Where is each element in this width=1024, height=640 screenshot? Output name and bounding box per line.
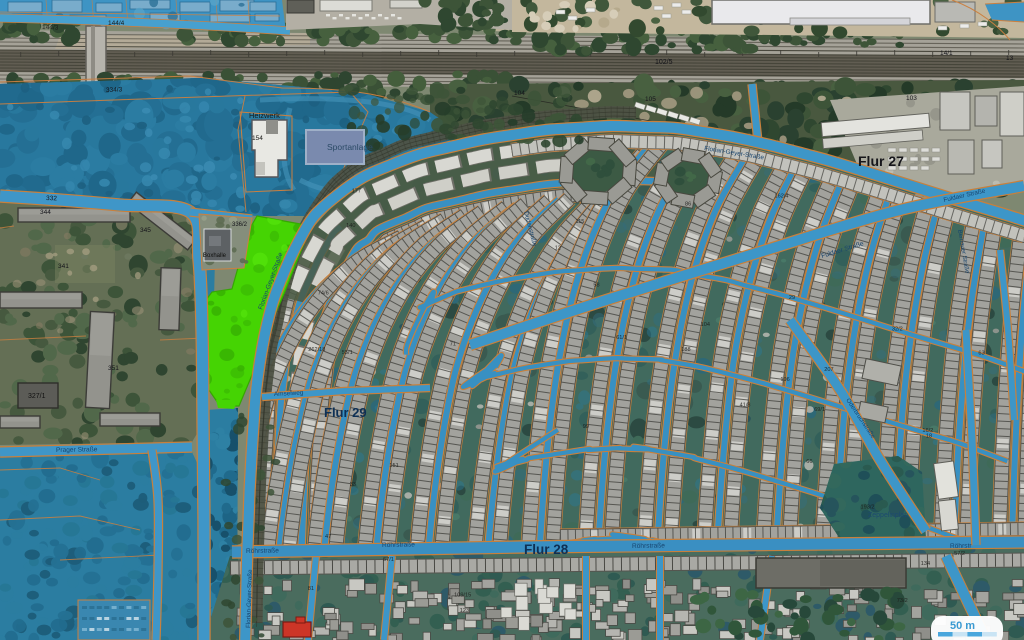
- svg-text:332: 332: [46, 195, 57, 202]
- svg-text:104: 104: [514, 90, 525, 97]
- svg-text:73/2: 73/2: [897, 598, 908, 604]
- svg-text:207: 207: [824, 367, 833, 373]
- svg-text:55/1: 55/1: [342, 350, 353, 356]
- svg-text:115: 115: [576, 219, 585, 225]
- svg-text:12: 12: [555, 245, 561, 251]
- svg-text:188: 188: [681, 347, 690, 353]
- svg-text:99: 99: [583, 424, 589, 430]
- svg-text:Flur 29: Flur 29: [324, 405, 367, 420]
- svg-text:14/1: 14/1: [940, 50, 953, 57]
- svg-text:71: 71: [450, 341, 456, 347]
- svg-text:104: 104: [701, 322, 710, 328]
- svg-text:Röhrstraße: Röhrstraße: [632, 542, 665, 550]
- svg-text:351: 351: [108, 365, 119, 372]
- svg-text:Zeppelinplatz: Zeppelinplatz: [868, 512, 910, 519]
- svg-text:Flur 28: Flur 28: [524, 542, 569, 557]
- svg-text:74/6: 74/6: [318, 291, 329, 297]
- svg-text:Röhrstraße: Röhrstraße: [246, 547, 279, 555]
- svg-text:50 m: 50 m: [950, 620, 975, 632]
- svg-text:63: 63: [978, 351, 984, 357]
- svg-text:103: 103: [906, 95, 917, 102]
- svg-text:81: 81: [308, 586, 314, 592]
- svg-text:Sportanlage: Sportanlage: [327, 142, 373, 152]
- svg-text:32/2: 32/2: [892, 327, 903, 333]
- svg-text:336/2: 336/2: [232, 222, 248, 228]
- svg-text:105: 105: [645, 96, 656, 103]
- svg-text:57/2: 57/2: [954, 551, 965, 557]
- svg-text:Heizwerk: Heizwerk: [249, 111, 280, 120]
- svg-text:13: 13: [1006, 55, 1014, 62]
- svg-text:193/2: 193/2: [861, 505, 875, 511]
- svg-text:Flur 27: Flur 27: [858, 153, 904, 169]
- svg-text:41/8: 41/8: [740, 403, 751, 409]
- svg-text:47: 47: [325, 534, 331, 540]
- svg-text:66: 66: [806, 459, 812, 465]
- svg-text:196: 196: [780, 377, 789, 383]
- svg-text:Röhrstraße: Röhrstraße: [382, 541, 415, 549]
- svg-text:345: 345: [140, 227, 151, 234]
- svg-text:327/1: 327/1: [28, 393, 46, 400]
- svg-text:86: 86: [685, 202, 691, 208]
- svg-text:58: 58: [593, 282, 599, 288]
- svg-text:144/3: 144/3: [42, 24, 59, 32]
- svg-text:Prager Straße: Prager Straße: [56, 446, 98, 454]
- svg-text:109/15: 109/15: [454, 593, 471, 599]
- svg-text:69/1: 69/1: [814, 407, 825, 413]
- svg-text:61/1: 61/1: [616, 335, 627, 341]
- svg-text:162/4: 162/4: [775, 193, 789, 199]
- svg-text:Röhrstr: Röhrstr: [950, 543, 973, 550]
- svg-text:Boxhalle: Boxhalle: [203, 253, 227, 259]
- svg-text:262/18: 262/18: [308, 347, 325, 353]
- svg-text:344: 344: [40, 209, 51, 216]
- svg-text:102/5: 102/5: [655, 59, 673, 66]
- svg-text:123: 123: [460, 608, 469, 614]
- svg-text:154: 154: [252, 135, 263, 142]
- svg-text:140: 140: [346, 223, 355, 229]
- svg-text:18: 18: [926, 434, 932, 440]
- svg-text:144/4: 144/4: [108, 20, 125, 27]
- svg-text:334/3: 334/3: [106, 86, 123, 94]
- svg-text:134: 134: [921, 561, 930, 567]
- svg-text:67/1: 67/1: [383, 557, 394, 563]
- svg-text:177: 177: [352, 188, 361, 194]
- svg-text:341: 341: [58, 263, 69, 270]
- svg-text:33: 33: [350, 482, 356, 488]
- svg-text:151: 151: [389, 463, 398, 469]
- svg-text:29: 29: [789, 295, 795, 301]
